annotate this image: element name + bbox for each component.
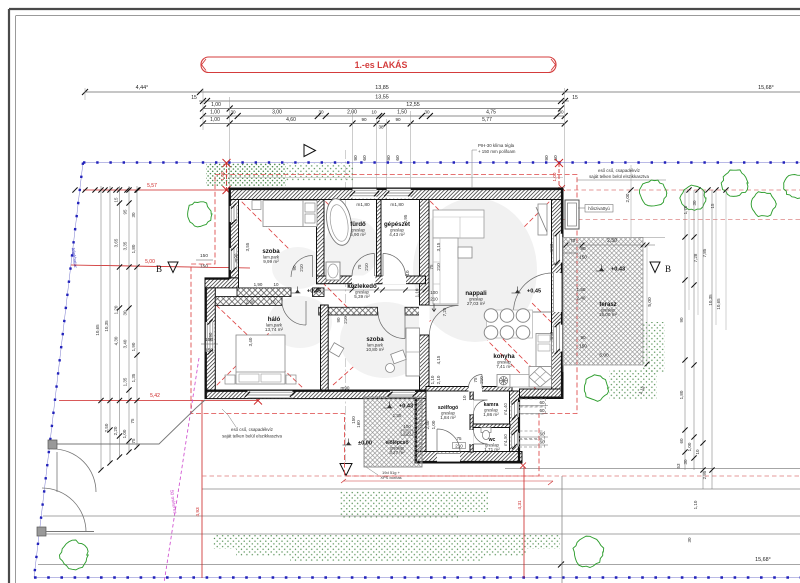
svg-text:7,25: 7,25 <box>442 307 447 316</box>
svg-text:3,65: 3,65 <box>114 238 119 247</box>
svg-text:1,00: 1,00 <box>552 172 557 181</box>
svg-text:5,42: 5,42 <box>150 393 160 399</box>
svg-text:5,00: 5,00 <box>145 259 155 265</box>
svg-text:1,80: 1,80 <box>679 390 684 399</box>
svg-text:4,75: 4,75 <box>486 110 496 116</box>
svg-text:2,30: 2,30 <box>607 238 617 244</box>
svg-text:90: 90 <box>580 335 586 340</box>
svg-text:1,00: 1,00 <box>431 420 436 429</box>
svg-text:2,90: 2,90 <box>246 300 255 305</box>
svg-text:150: 150 <box>205 348 213 354</box>
svg-text:1,00: 1,00 <box>122 429 127 438</box>
svg-text:90: 90 <box>336 317 341 323</box>
svg-text:1,10: 1,10 <box>415 288 420 297</box>
svg-text:5,39 m²: 5,39 m² <box>354 294 370 299</box>
svg-text:9,99 m²: 9,99 m² <box>263 259 279 264</box>
svg-text:1,50: 1,50 <box>577 287 586 292</box>
svg-text:B: B <box>665 264 671 274</box>
svg-text:1,20: 1,20 <box>114 305 119 314</box>
svg-text:5,00: 5,00 <box>647 297 653 307</box>
svg-text:4,43 m²: 4,43 m² <box>389 232 405 237</box>
svg-text:53: 53 <box>676 463 681 469</box>
svg-text:7,28: 7,28 <box>693 253 698 262</box>
svg-text:5,90 m²: 5,90 m² <box>350 232 366 237</box>
svg-text:10: 10 <box>270 300 276 305</box>
svg-text:150: 150 <box>205 337 213 343</box>
svg-text:30: 30 <box>424 110 430 115</box>
svg-text:30: 30 <box>318 110 324 115</box>
svg-text:3,55: 3,55 <box>245 242 250 251</box>
svg-text:13,85: 13,85 <box>375 85 389 91</box>
svg-text:90: 90 <box>361 117 367 122</box>
svg-text:100: 100 <box>430 290 438 295</box>
svg-text:60: 60 <box>539 440 545 445</box>
svg-text:+0,43: +0,43 <box>399 404 413 410</box>
svg-text:15,68°: 15,68° <box>755 557 771 563</box>
svg-text:2,50: 2,50 <box>104 423 109 432</box>
svg-text:10,35: 10,35 <box>104 320 109 332</box>
svg-text:m90: m90 <box>549 331 554 340</box>
svg-text:5,00: 5,00 <box>599 353 609 359</box>
svg-text:,70: ,70 <box>569 238 576 243</box>
svg-text:15,68°: 15,68° <box>758 85 774 91</box>
svg-text:10,80 m²: 10,80 m² <box>366 347 385 352</box>
svg-text:30: 30 <box>687 537 692 543</box>
svg-text:1,86 m²: 1,86 m² <box>483 412 499 417</box>
svg-text:1,75: 1,75 <box>683 205 688 214</box>
svg-text:210: 210 <box>430 297 438 302</box>
svg-text:4,93: 4,93 <box>195 507 201 517</box>
svg-text:60: 60 <box>362 155 368 161</box>
svg-text:75: 75 <box>429 264 434 270</box>
svg-text:+0,43: +0,43 <box>611 267 625 273</box>
svg-text:10: 10 <box>273 282 279 287</box>
svg-text:90: 90 <box>386 155 392 161</box>
svg-text:210: 210 <box>299 264 304 272</box>
svg-text:1,35: 1,35 <box>131 373 136 382</box>
svg-text:150: 150 <box>579 255 587 260</box>
svg-text:150: 150 <box>200 253 208 259</box>
svg-text:eső cső, csapadékvíz: eső cső, csapadékvíz <box>598 168 640 173</box>
svg-text:95: 95 <box>123 209 128 215</box>
svg-text:60: 60 <box>539 408 545 413</box>
svg-text:4,60: 4,60 <box>286 117 296 123</box>
svg-text:hőszivattyú: hőszivattyú <box>588 206 610 211</box>
svg-text:210: 210 <box>364 263 369 271</box>
svg-text:90: 90 <box>353 155 359 161</box>
svg-text:3,27 m²: 3,27 m² <box>389 450 405 455</box>
svg-text:13,55: 13,55 <box>375 95 389 101</box>
svg-text:90: 90 <box>292 265 297 271</box>
svg-text:4,90: 4,90 <box>348 284 357 289</box>
svg-text:3,40: 3,40 <box>248 337 253 346</box>
svg-text:3,35: 3,35 <box>123 241 128 250</box>
svg-text:m1,80: m1,80 <box>390 202 404 208</box>
svg-text:12,55: 12,55 <box>406 102 420 108</box>
svg-text:3,40: 3,40 <box>123 339 128 348</box>
svg-text:75: 75 <box>357 264 362 270</box>
svg-text:1,00: 1,00 <box>211 102 221 108</box>
svg-text:10: 10 <box>462 395 467 401</box>
svg-text:saját telken belül elszikkaszt: saját telken belül elszikkasztva <box>589 174 649 179</box>
svg-text:75: 75 <box>456 436 462 441</box>
svg-text:90: 90 <box>544 155 550 161</box>
svg-text:210: 210 <box>403 431 411 436</box>
svg-text:10,35: 10,35 <box>708 294 713 306</box>
svg-text:+0,45: +0,45 <box>307 289 321 295</box>
svg-text:XPS borítás: XPS borítás <box>380 475 401 480</box>
svg-text:150: 150 <box>200 264 208 270</box>
svg-text:160: 160 <box>356 420 361 428</box>
svg-text:30: 30 <box>123 310 128 316</box>
svg-text:15: 15 <box>191 95 197 101</box>
svg-text:1.-es LAKÁS: 1.-es LAKÁS <box>355 60 408 70</box>
svg-text:eső cső, csapadékvíz: eső cső, csapadékvíz <box>231 427 273 432</box>
svg-text:1,00: 1,00 <box>210 110 220 116</box>
svg-text:1,00: 1,00 <box>220 171 225 180</box>
svg-text:60: 60 <box>539 432 545 437</box>
svg-text:90: 90 <box>395 117 401 122</box>
svg-text:1,10: 1,10 <box>430 375 435 384</box>
svg-text:60: 60 <box>679 438 684 444</box>
svg-text:210: 210 <box>455 444 463 449</box>
svg-text:2,00: 2,00 <box>347 110 357 116</box>
svg-text:2,40: 2,40 <box>425 420 430 429</box>
svg-text:4,44°: 4,44° <box>136 85 149 91</box>
svg-text:27,03 m²: 27,03 m² <box>467 301 486 306</box>
svg-text:10,65: 10,65 <box>716 298 721 310</box>
svg-text:30: 30 <box>692 200 697 206</box>
svg-text:7,41 m²: 7,41 m² <box>496 364 512 369</box>
svg-text:4,30: 4,30 <box>114 336 119 345</box>
svg-text:10: 10 <box>405 270 410 276</box>
svg-text:75: 75 <box>130 418 135 424</box>
svg-text:2,40: 2,40 <box>577 296 586 301</box>
svg-text:13,74 m²: 13,74 m² <box>265 327 284 332</box>
svg-text:210: 210 <box>343 316 348 324</box>
svg-text:±0,00: ±0,00 <box>358 441 372 447</box>
svg-text:10,65: 10,65 <box>95 324 100 336</box>
svg-text:30: 30 <box>683 459 688 465</box>
svg-text:3,15: 3,15 <box>436 242 441 251</box>
svg-text:30: 30 <box>230 110 236 115</box>
svg-text:90: 90 <box>580 246 586 251</box>
svg-text:2,95: 2,95 <box>702 470 707 479</box>
svg-text:m1,40: m1,40 <box>503 403 508 415</box>
svg-text:15,00 m²: 15,00 m² <box>599 312 618 317</box>
svg-text:10: 10 <box>371 110 377 115</box>
svg-text:2,10: 2,10 <box>436 375 441 384</box>
svg-text:1,90: 1,90 <box>254 282 263 287</box>
svg-text:1,80: 1,80 <box>131 244 136 253</box>
svg-text:1,35: 1,35 <box>393 413 402 418</box>
svg-text:150: 150 <box>579 344 587 349</box>
svg-text:15: 15 <box>572 95 578 101</box>
svg-text:4,31: 4,31 <box>517 500 523 510</box>
svg-text:2,00: 2,00 <box>625 193 630 202</box>
svg-text:15: 15 <box>710 203 715 209</box>
svg-text:m1,80: m1,80 <box>356 202 370 208</box>
svg-text:B: B <box>156 264 162 274</box>
svg-text:15: 15 <box>114 197 119 203</box>
svg-text:1,00: 1,00 <box>687 442 692 451</box>
svg-text:60: 60 <box>395 155 401 161</box>
svg-text:4,15: 4,15 <box>436 355 441 364</box>
svg-text:+ 150 mm polifoam: + 150 mm polifoam <box>478 149 516 154</box>
svg-text:2,20: 2,20 <box>113 426 118 435</box>
svg-text:1,90: 1,90 <box>131 342 136 351</box>
svg-text:m90: m90 <box>549 243 554 252</box>
svg-text:30: 30 <box>558 110 564 115</box>
svg-text:1,50: 1,50 <box>397 110 407 116</box>
svg-text:210: 210 <box>479 376 484 384</box>
svg-text:1,71 m²: 1,71 m² <box>484 447 500 452</box>
svg-text:90: 90 <box>679 317 684 323</box>
svg-text:+0,45: +0,45 <box>527 289 541 295</box>
svg-text:60: 60 <box>539 400 545 405</box>
svg-text:1,10: 1,10 <box>693 500 698 509</box>
svg-text:100: 100 <box>403 424 411 429</box>
svg-text:3,00: 3,00 <box>272 110 282 116</box>
svg-text:m90: m90 <box>341 386 350 391</box>
svg-text:2,95: 2,95 <box>403 214 408 223</box>
svg-text:30: 30 <box>131 212 136 218</box>
svg-text:m90: m90 <box>234 253 239 262</box>
svg-text:10: 10 <box>695 449 700 455</box>
svg-text:75: 75 <box>131 438 136 444</box>
svg-text:1,00: 1,00 <box>210 117 220 123</box>
svg-text:5,57: 5,57 <box>147 183 157 189</box>
svg-text:210: 210 <box>436 263 441 271</box>
svg-text:saját telken belül elszikkaszt: saját telken belül elszikkasztva <box>222 434 282 439</box>
svg-text:5,77: 5,77 <box>482 117 492 123</box>
svg-text:7,85: 7,85 <box>702 248 707 257</box>
svg-text:38: 38 <box>378 125 384 130</box>
svg-text:75: 75 <box>473 377 478 383</box>
svg-text:m1,50: m1,50 <box>503 434 508 446</box>
svg-text:1,35: 1,35 <box>123 377 128 386</box>
svg-text:1,84 m²: 1,84 m² <box>440 415 456 420</box>
svg-text:PIH-30 klíma tégla: PIH-30 klíma tégla <box>478 143 515 148</box>
